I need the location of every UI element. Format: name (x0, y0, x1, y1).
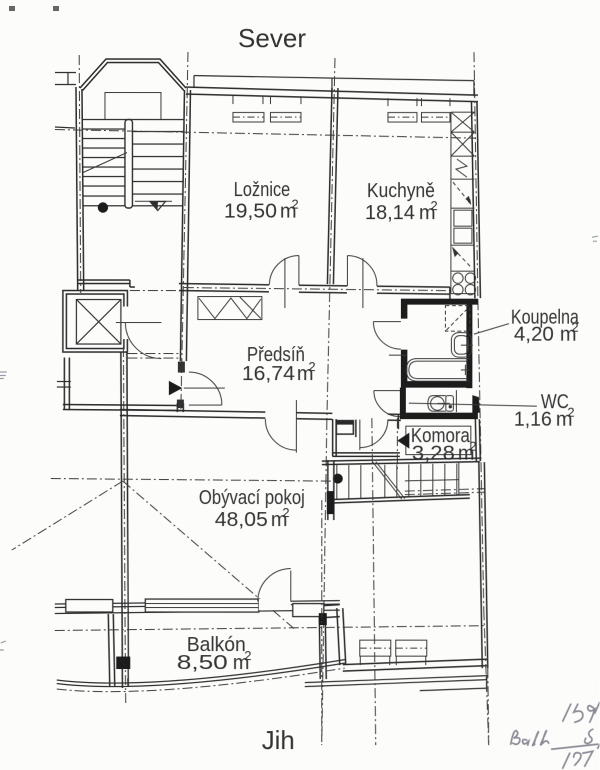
svg-text:2: 2 (291, 197, 298, 212)
svg-text:Kuchyně: Kuchyně (367, 180, 435, 202)
svg-text:19,50: 19,50 (224, 201, 277, 223)
svg-text:18,14: 18,14 (365, 202, 415, 224)
svg-text:2: 2 (308, 359, 315, 374)
svg-text:2: 2 (571, 320, 578, 335)
svg-text:Jih: Jih (262, 725, 295, 755)
svg-text:3,28: 3,28 (412, 443, 455, 465)
svg-text:48,05: 48,05 (215, 509, 268, 531)
svg-text:Ložnice: Ložnice (234, 179, 291, 201)
svg-text:Sever: Sever (238, 23, 306, 53)
svg-text:2: 2 (282, 505, 289, 520)
svg-text:2: 2 (244, 648, 251, 663)
svg-text:1,16: 1,16 (514, 409, 552, 431)
svg-text:2: 2 (430, 198, 437, 213)
svg-text:16,74: 16,74 (242, 363, 295, 385)
svg-text:2: 2 (567, 405, 574, 420)
svg-text:2: 2 (469, 439, 476, 454)
svg-text:8,50: 8,50 (177, 652, 228, 674)
svg-text:4,20: 4,20 (514, 324, 554, 346)
